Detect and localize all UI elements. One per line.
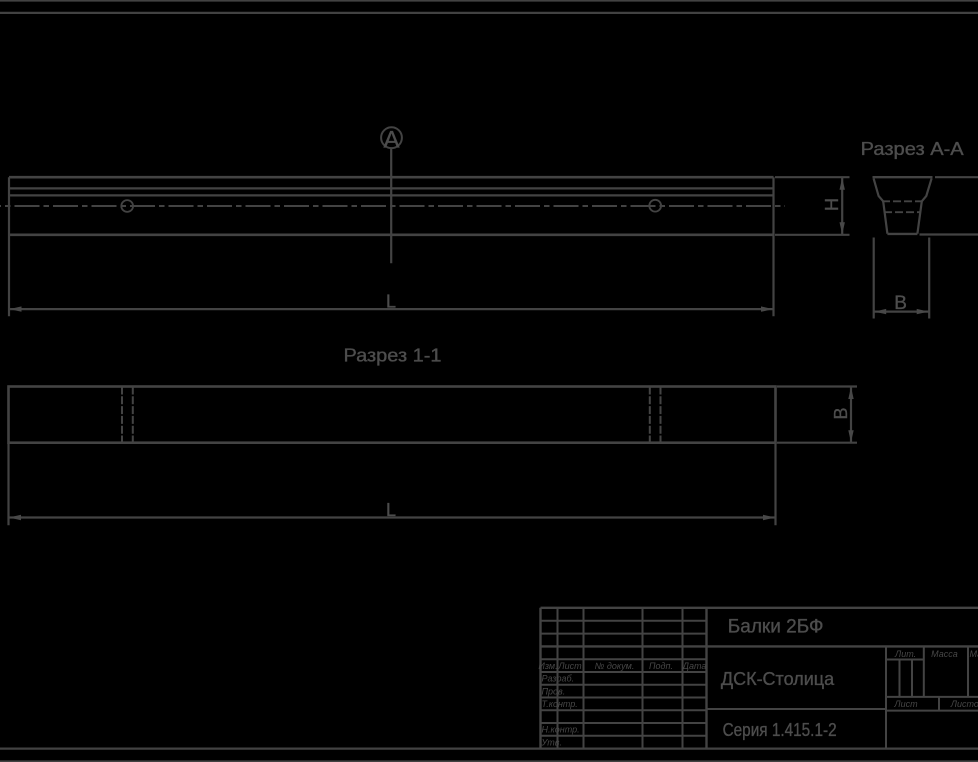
- svg-text:Н.контр.: Н.контр.: [542, 725, 580, 735]
- svg-text:H: H: [822, 198, 842, 211]
- svg-text:Лит.: Лит.: [894, 649, 916, 659]
- svg-text:L: L: [386, 291, 396, 311]
- svg-text:Изм.: Изм.: [538, 661, 557, 671]
- svg-text:Балки 2БФ: Балки 2БФ: [728, 616, 824, 637]
- svg-text:ДСК-Столица: ДСК-Столица: [721, 669, 835, 689]
- svg-text:Пров.: Пров.: [542, 686, 566, 696]
- svg-text:Листов: Листов: [950, 699, 978, 709]
- svg-text:Лист: Лист: [893, 699, 918, 709]
- svg-text:L: L: [386, 500, 396, 520]
- svg-text:Т.контр.: Т.контр.: [542, 699, 578, 709]
- svg-text:Лист: Лист: [557, 661, 582, 671]
- svg-text:Подп.: Подп.: [649, 661, 673, 671]
- svg-text:B: B: [894, 293, 907, 314]
- svg-text:Разраб.: Разраб.: [542, 674, 575, 684]
- svg-text:B: B: [831, 407, 851, 419]
- svg-text:Серия 1.415.1-2: Серия 1.415.1-2: [723, 720, 837, 740]
- svg-text:А: А: [383, 126, 399, 153]
- svg-text:Масса: Масса: [931, 649, 958, 659]
- svg-text:Масштаб: Масштаб: [970, 649, 978, 659]
- svg-text:Разрез А-А: Разрез А-А: [861, 139, 964, 159]
- svg-text:№ докум.: № докум.: [595, 661, 635, 671]
- svg-text:Утв.: Утв.: [541, 738, 562, 748]
- svg-text:Дата: Дата: [682, 661, 707, 671]
- svg-text:Разрез 1-1: Разрез 1-1: [344, 345, 442, 365]
